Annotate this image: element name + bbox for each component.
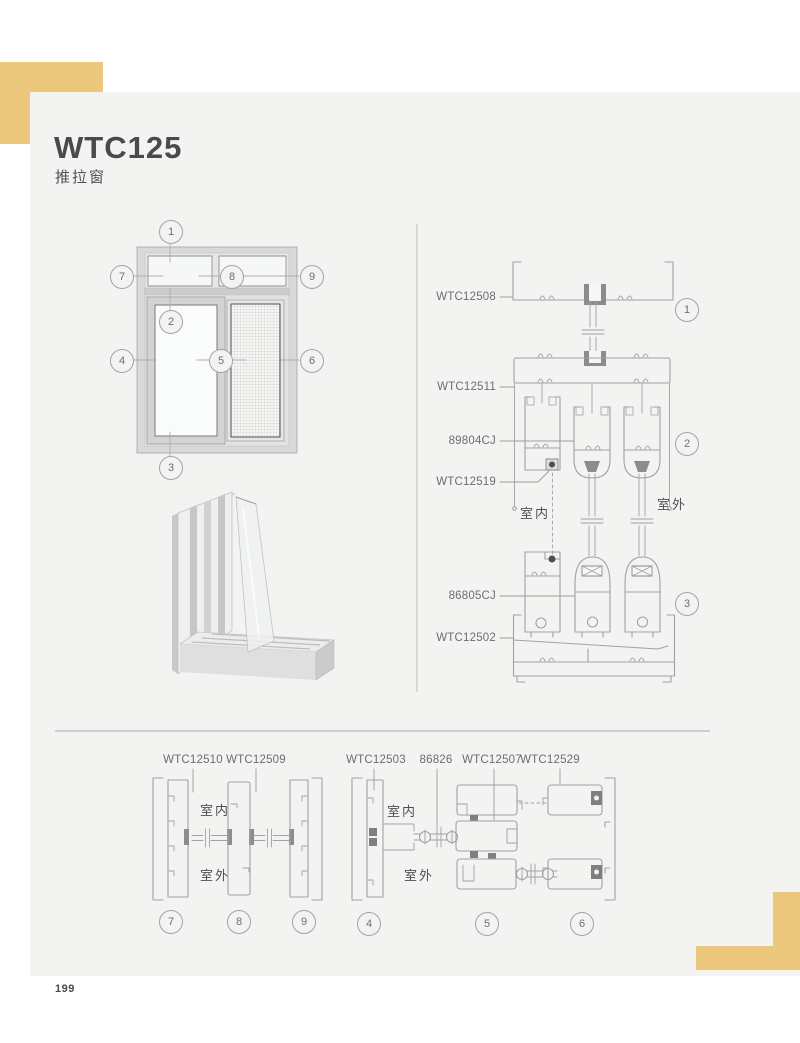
- elevation-callout-7: 7: [110, 265, 134, 289]
- vs-indoor-label: 室内: [520, 503, 550, 522]
- hsr-callout-4: 4: [357, 912, 381, 936]
- part-label-wtc12529: WTC12529: [510, 754, 590, 766]
- vertical-section-drawing: [500, 262, 675, 682]
- hsl-indoor-label: 室内: [200, 800, 230, 819]
- catalog-page: WTC125 推拉窗 199 1 2 3 4 5 6 7 8 9 WTC1250…: [0, 0, 800, 1043]
- vs-callout-1: 1: [675, 298, 699, 322]
- profile-3d-render: [172, 492, 334, 680]
- page-number: 199: [55, 983, 75, 995]
- page-title: WTC125: [54, 130, 182, 166]
- hsr-callout-5: 5: [475, 912, 499, 936]
- part-label-wtc12509: WTC12509: [216, 754, 296, 766]
- elevation-callout-1: 1: [159, 220, 183, 244]
- part-label-89804cj: 89804CJ: [424, 435, 496, 447]
- vs-callout-2: 2: [675, 432, 699, 456]
- vs-outdoor-label: 室外: [657, 494, 687, 513]
- elevation-callout-4: 4: [110, 349, 134, 373]
- part-label-wtc12511: WTC12511: [424, 381, 496, 393]
- part-label-wtc12508: WTC12508: [424, 291, 496, 303]
- horizontal-section-right-drawing: [352, 769, 615, 900]
- hsl-callout-7: 7: [159, 910, 183, 934]
- part-label-wtc12502: WTC12502: [424, 632, 496, 644]
- hsl-callout-9: 9: [292, 910, 316, 934]
- hsr-outdoor-label: 室外: [404, 865, 434, 884]
- elevation-callout-8: 8: [220, 265, 244, 289]
- elevation-callout-5: 5: [209, 349, 233, 373]
- vs-callout-3: 3: [675, 592, 699, 616]
- horizontal-section-left-drawing: [153, 769, 322, 900]
- page-subtitle: 推拉窗: [55, 166, 106, 187]
- hsl-callout-8: 8: [227, 910, 251, 934]
- elevation-callout-6: 6: [300, 349, 324, 373]
- hsl-outdoor-label: 室外: [200, 865, 230, 884]
- part-label-wtc12519: WTC12519: [424, 476, 496, 488]
- hsr-indoor-label: 室内: [387, 801, 417, 820]
- elevation-callout-9: 9: [300, 265, 324, 289]
- hsr-callout-6: 6: [570, 912, 594, 936]
- elevation-callout-2: 2: [159, 310, 183, 334]
- elevation-callout-3: 3: [159, 456, 183, 480]
- part-label-86805cj: 86805CJ: [424, 590, 496, 602]
